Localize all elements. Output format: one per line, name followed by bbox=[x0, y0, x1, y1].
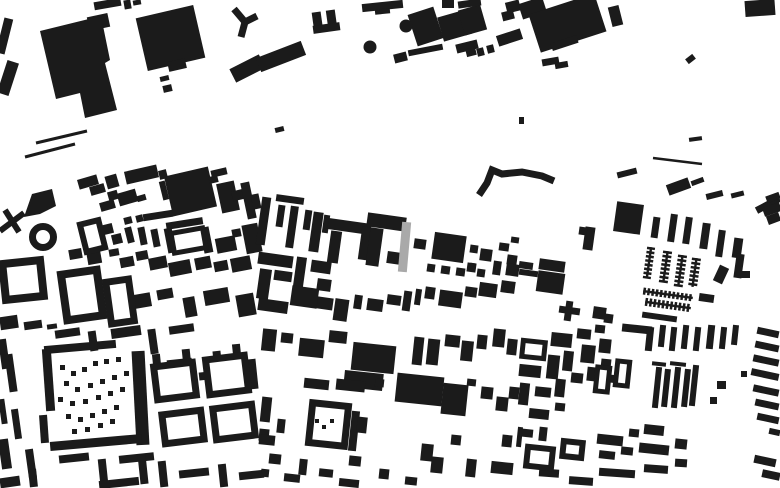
building-footprint bbox=[529, 408, 550, 420]
building-footprint bbox=[464, 286, 477, 298]
building-footprint bbox=[613, 201, 644, 234]
building-footprint bbox=[501, 435, 512, 448]
building-footprint bbox=[519, 117, 524, 124]
building-footprint bbox=[744, 0, 775, 17]
circular-building bbox=[364, 41, 377, 54]
building-footprint bbox=[675, 438, 688, 449]
building-footprint bbox=[495, 396, 508, 411]
building-footprint bbox=[451, 435, 462, 446]
shed-dot bbox=[72, 429, 77, 434]
courtyard-block-building bbox=[206, 355, 249, 394]
courtyard-block-building bbox=[162, 410, 204, 444]
building-footprint bbox=[490, 461, 513, 475]
courtyard-block-building bbox=[61, 270, 103, 321]
building-footprint bbox=[290, 285, 320, 309]
building-footprint bbox=[562, 351, 574, 372]
building-footprint bbox=[621, 446, 634, 455]
building-footprint bbox=[603, 313, 613, 323]
building-footprint bbox=[431, 232, 466, 263]
shed-dot bbox=[78, 417, 83, 422]
shed-dot bbox=[102, 409, 107, 414]
building-footprint bbox=[492, 328, 506, 347]
courtyard-block-building bbox=[309, 403, 349, 447]
building-footprint bbox=[598, 338, 611, 353]
shed-dot bbox=[110, 419, 115, 424]
shed-dot bbox=[100, 379, 105, 384]
building-footprint bbox=[438, 289, 463, 308]
building-footprint bbox=[386, 294, 401, 306]
building-footprint bbox=[675, 459, 688, 468]
building-footprint bbox=[466, 262, 476, 272]
building-footprint bbox=[328, 330, 347, 344]
building-footprint bbox=[366, 298, 384, 312]
building-footprint bbox=[599, 450, 616, 460]
building-footprint bbox=[426, 263, 435, 272]
shed-dot bbox=[60, 365, 65, 370]
linear-structure bbox=[241, 22, 245, 37]
building-footprint bbox=[505, 263, 520, 277]
building-footprint bbox=[235, 293, 257, 318]
building-footprint bbox=[467, 379, 477, 387]
shed-dot bbox=[116, 357, 121, 362]
building-footprint bbox=[476, 268, 485, 277]
shed-dot bbox=[71, 371, 76, 376]
building-footprint bbox=[405, 476, 418, 485]
courtyard-block-building bbox=[522, 340, 546, 358]
building-footprint bbox=[356, 417, 368, 434]
shed-dot bbox=[58, 397, 63, 402]
building-footprint bbox=[741, 371, 747, 377]
building-footprint bbox=[379, 469, 390, 480]
building-footprint bbox=[717, 381, 726, 389]
building-footprint bbox=[319, 468, 334, 477]
shed-dot bbox=[96, 395, 101, 400]
shed-dot bbox=[90, 413, 95, 418]
shed-dot bbox=[75, 387, 80, 392]
shed-dot bbox=[108, 391, 113, 396]
building-footprint bbox=[535, 386, 552, 398]
shed-dot bbox=[88, 383, 93, 388]
circular-building bbox=[400, 20, 413, 33]
building-footprint bbox=[395, 373, 445, 407]
building-footprint bbox=[261, 469, 270, 478]
building-footprint bbox=[550, 332, 572, 348]
building-footprint bbox=[351, 342, 397, 374]
building-footprint bbox=[536, 270, 566, 295]
building-footprint bbox=[259, 434, 276, 446]
building-footprint bbox=[444, 334, 460, 348]
building-footprint bbox=[261, 328, 277, 351]
courtyard-block-building bbox=[171, 228, 206, 253]
building-footprint bbox=[460, 340, 474, 361]
building-footprint bbox=[269, 453, 282, 464]
building-footprint bbox=[469, 244, 478, 253]
courtyard-block-building bbox=[526, 447, 553, 469]
building-footprint bbox=[298, 459, 308, 476]
courtyard-block-building bbox=[615, 361, 629, 386]
building-footprint bbox=[455, 267, 465, 276]
building-footprint bbox=[644, 424, 665, 436]
shed-dot bbox=[114, 405, 119, 410]
building-footprint bbox=[476, 335, 487, 350]
map-canvas bbox=[0, 0, 780, 488]
shed-dot bbox=[124, 371, 129, 376]
building-footprint bbox=[555, 402, 566, 411]
shed-dot bbox=[315, 419, 319, 423]
building-footprint bbox=[511, 236, 520, 243]
shed-dot bbox=[104, 359, 109, 364]
building-footprint bbox=[284, 473, 301, 483]
building-footprint bbox=[580, 344, 596, 363]
building-footprint bbox=[479, 248, 493, 262]
shed-dot bbox=[85, 427, 90, 432]
building-footprint bbox=[413, 238, 426, 250]
building-footprint bbox=[508, 387, 519, 400]
building-footprint bbox=[440, 265, 450, 274]
courtyard-block-building bbox=[562, 441, 582, 458]
shed-dot bbox=[98, 423, 103, 428]
shed-dot bbox=[83, 399, 88, 404]
building-footprint bbox=[465, 459, 477, 478]
building-footprint bbox=[0, 315, 19, 330]
building-footprint bbox=[442, 0, 454, 8]
shed-dot bbox=[82, 367, 87, 372]
shed-dot bbox=[66, 414, 71, 419]
building-footprint bbox=[276, 419, 285, 434]
courtyard-block-building bbox=[595, 367, 609, 392]
building-footprint bbox=[500, 280, 516, 294]
building-footprint bbox=[478, 282, 498, 298]
building-footprint bbox=[710, 397, 717, 404]
building-footprint bbox=[298, 338, 325, 359]
shed-dot bbox=[322, 425, 326, 429]
building-footprint bbox=[506, 339, 518, 356]
figure-ground-map bbox=[0, 0, 780, 488]
building-footprint bbox=[629, 428, 640, 437]
building-footprint bbox=[595, 324, 606, 333]
shed-dot bbox=[112, 375, 117, 380]
building-footprint bbox=[571, 372, 584, 383]
courtyard-block-building bbox=[213, 404, 255, 440]
shed-dot bbox=[70, 401, 75, 406]
building-footprint bbox=[424, 286, 436, 299]
building-footprint bbox=[578, 226, 587, 235]
shed-dot bbox=[64, 381, 69, 386]
building-footprint bbox=[231, 228, 241, 238]
building-footprint bbox=[375, 379, 385, 388]
building-footprint bbox=[430, 456, 444, 473]
courtyard-block-building bbox=[80, 220, 105, 252]
building-footprint bbox=[281, 332, 294, 343]
building-footprint bbox=[644, 464, 668, 474]
building-footprint bbox=[518, 364, 541, 378]
courtyard-block-building bbox=[106, 279, 135, 324]
building-footprint bbox=[519, 428, 534, 437]
building-footprint bbox=[554, 379, 566, 398]
shed-dot bbox=[330, 419, 334, 423]
building-footprint bbox=[577, 328, 592, 339]
shed-dot bbox=[120, 387, 125, 392]
building-footprint bbox=[498, 242, 509, 251]
building-footprint bbox=[569, 476, 593, 486]
building-footprint bbox=[349, 455, 362, 466]
building-footprint bbox=[538, 427, 547, 442]
building-footprint bbox=[480, 386, 493, 399]
shed-dot bbox=[93, 361, 98, 366]
courtyard-block-building bbox=[154, 362, 197, 400]
courtyard-block-building bbox=[2, 260, 44, 300]
building-footprint bbox=[740, 271, 750, 278]
building-footprint bbox=[546, 354, 560, 379]
building-footprint bbox=[440, 383, 468, 416]
